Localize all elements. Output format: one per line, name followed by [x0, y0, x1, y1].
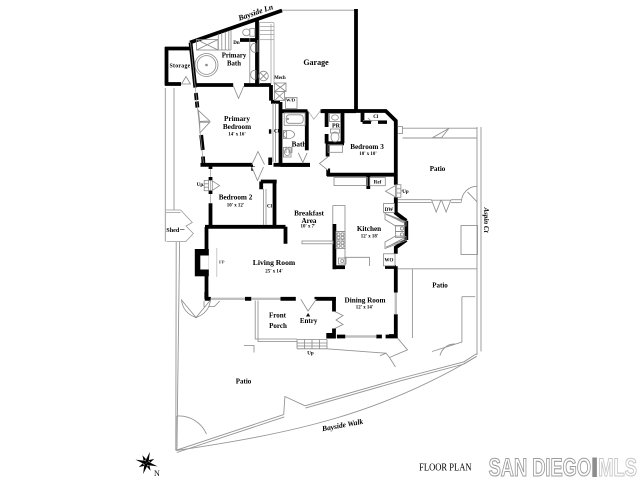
svg-text:Primary: Primary — [222, 53, 247, 60]
svg-text:Area: Area — [301, 217, 316, 225]
svg-text:Bath: Bath — [227, 60, 241, 67]
svg-text:Dining Room: Dining Room — [345, 296, 386, 304]
svg-text:Dn: Dn — [233, 41, 240, 46]
svg-text:Up: Up — [307, 352, 314, 357]
svg-text:Bedroom 3: Bedroom 3 — [350, 143, 384, 151]
svg-text:12' x 14': 12' x 14' — [356, 306, 373, 311]
svg-text:Cl: Cl — [373, 115, 379, 120]
svg-text:FLOOR PLAN: FLOOR PLAN — [419, 462, 472, 473]
svg-text:MLS: MLS — [598, 455, 637, 480]
svg-text:Shed: Shed — [166, 227, 180, 234]
svg-text:Cl: Cl — [274, 130, 280, 135]
svg-text:Aspin Ct: Aspin Ct — [482, 206, 490, 233]
svg-text:W/D: W/D — [286, 98, 296, 103]
svg-text:Up: Up — [402, 190, 409, 195]
svg-text:Patio: Patio — [432, 282, 448, 290]
svg-text:12' x 18': 12' x 18' — [361, 235, 378, 240]
svg-text:Storage: Storage — [169, 64, 190, 70]
svg-text:Garage: Garage — [303, 58, 329, 67]
svg-text:25' x 14': 25' x 14' — [265, 270, 282, 275]
svg-text:Bedroom 2: Bedroom 2 — [219, 194, 253, 202]
svg-text:10' x 7': 10' x 7' — [301, 225, 316, 230]
svg-text:Up: Up — [197, 183, 204, 188]
svg-text:Cl: Cl — [267, 205, 273, 210]
svg-text:DW: DW — [385, 208, 394, 213]
svg-text:PR: PR — [332, 124, 341, 130]
svg-text:Entry: Entry — [300, 317, 318, 325]
svg-text:FP: FP — [219, 260, 225, 265]
svg-text:Living Room: Living Room — [253, 258, 296, 267]
svg-text:Primary: Primary — [224, 115, 250, 123]
svg-text:14' x 16': 14' x 16' — [228, 133, 245, 138]
svg-text:Porch: Porch — [269, 322, 287, 330]
svg-text:N: N — [154, 469, 160, 478]
svg-text:Ref: Ref — [374, 181, 382, 186]
svg-text:Patio: Patio — [430, 165, 446, 173]
svg-text:Bath: Bath — [292, 141, 307, 149]
svg-text:Patio: Patio — [236, 378, 252, 386]
svg-text:Kitchen: Kitchen — [357, 225, 381, 233]
svg-text:WO: WO — [385, 259, 394, 264]
svg-text:Front: Front — [269, 312, 287, 320]
svg-text:10' x 12': 10' x 12' — [227, 204, 244, 209]
svg-text:10' x 10': 10' x 10' — [359, 152, 376, 157]
svg-text:Bedroom: Bedroom — [223, 123, 251, 131]
svg-text:SAN DIEGO: SAN DIEGO — [489, 455, 591, 480]
svg-text:Mech: Mech — [274, 76, 286, 81]
